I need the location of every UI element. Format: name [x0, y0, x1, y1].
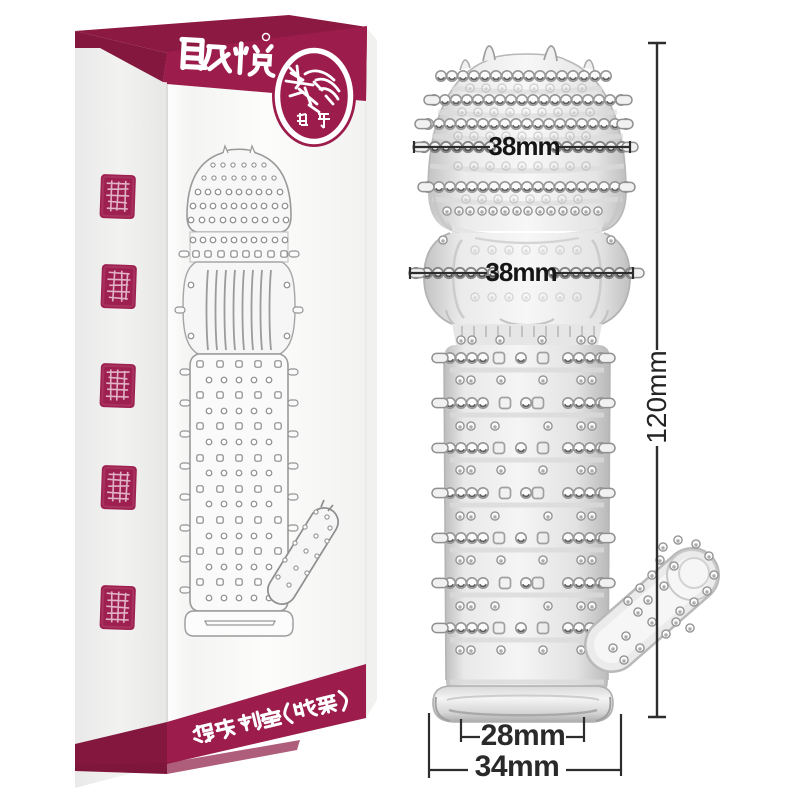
- svg-text:120mm: 120mm: [641, 350, 672, 443]
- svg-text:38mm: 38mm: [485, 257, 556, 287]
- svg-text:38mm: 38mm: [488, 131, 559, 161]
- svg-text:28mm: 28mm: [481, 719, 566, 752]
- svg-text:34mm: 34mm: [475, 750, 560, 783]
